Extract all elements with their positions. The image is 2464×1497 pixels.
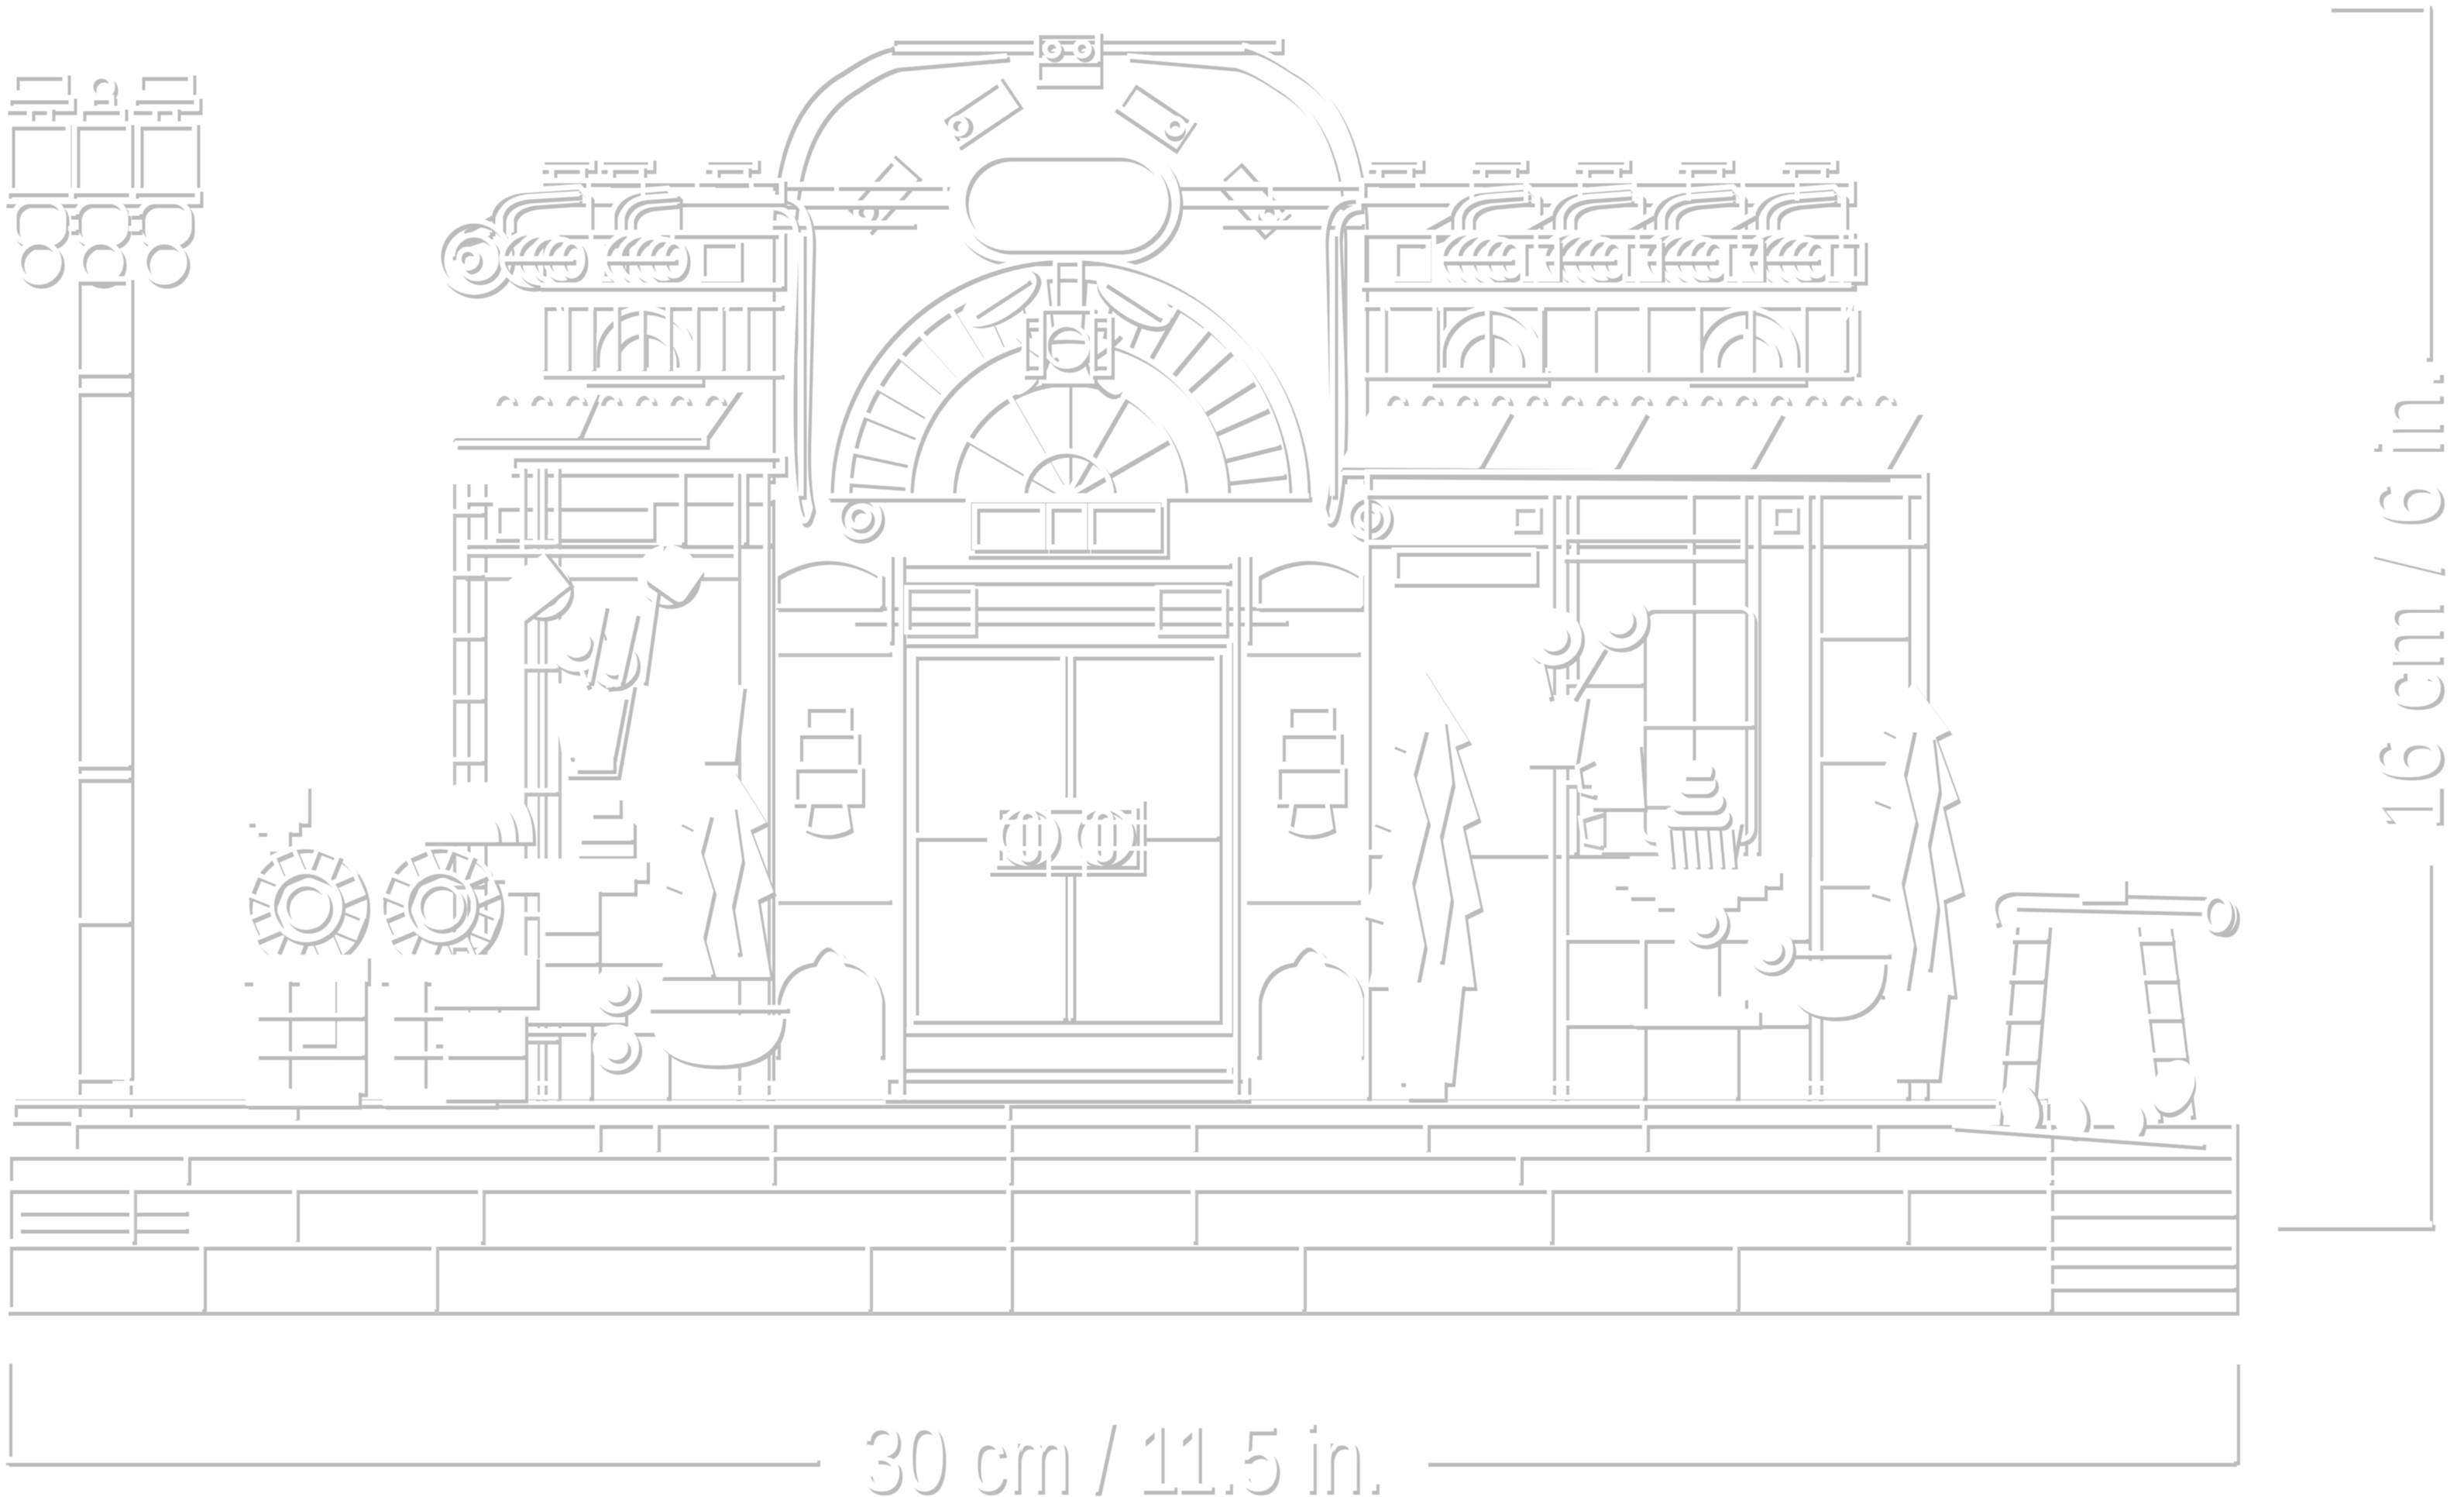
svg-text:16 cm / 6 in.: 16 cm / 6 in. <box>2354 364 2461 829</box>
svg-text:30 cm / 11.5 in.: 30 cm / 11.5 in. <box>860 1405 1383 1497</box>
